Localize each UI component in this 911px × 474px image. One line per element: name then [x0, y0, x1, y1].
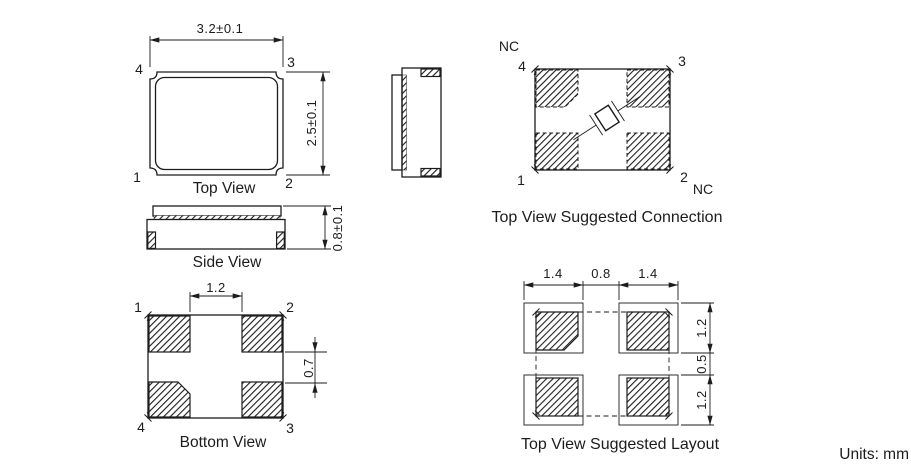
pad-gap-dimension-label: 1.2 [206, 280, 226, 295]
lid-outline [153, 206, 281, 216]
view-title: Top View Suggested Connection [492, 209, 723, 226]
view-title: Bottom View [180, 434, 268, 451]
package-drawing-canvas: 3.2±0.1 2.5±0.1 4 3 1 2 Top View 0.8±0.1… [0, 0, 911, 474]
layout-dim-label: 0.5 [694, 354, 709, 374]
pad-2 [242, 316, 282, 352]
pad-4-chamfered [536, 70, 578, 107]
pad-vgap-dimension-label: 0.7 [301, 358, 316, 378]
pad-2 [627, 133, 669, 169]
end-view [392, 68, 441, 177]
component-pad-4-chamfered [536, 312, 578, 350]
component-pad-1 [536, 378, 578, 416]
terminal-pad [277, 232, 285, 248]
package-outline [150, 72, 283, 175]
top-view: 3.2±0.1 2.5±0.1 4 3 1 2 Top View [133, 21, 330, 197]
layout-view: 1.4 0.8 1.4 1.2 0.5 1.2 Top View Suggest… [521, 266, 720, 453]
pin-label: 1 [133, 169, 141, 185]
bottom-view: 1.2 0.7 1 2 4 3 Bottom View [134, 280, 327, 451]
pin-label: 2 [286, 299, 294, 315]
connection-view: NC 4 3 1 2 NC Top View Suggested Connect… [492, 38, 723, 226]
layout-dim-label: 1.4 [543, 266, 563, 281]
lid-outline [156, 78, 278, 170]
package-drawing: 3.2±0.1 2.5±0.1 4 3 1 2 Top View 0.8±0.1… [0, 0, 911, 474]
layout-dim-label: 1.4 [638, 266, 658, 281]
pin-label: 4 [518, 58, 526, 74]
pin-label: 3 [287, 54, 295, 70]
layout-dim-label: 1.2 [694, 318, 709, 338]
seal-strip [403, 75, 407, 170]
layout-dim-label: 1.2 [694, 390, 709, 410]
terminal-pad [148, 232, 156, 248]
pin-label: 1 [517, 172, 525, 188]
pin-label: 3 [286, 420, 294, 436]
pad-4-chamfered [149, 382, 190, 417]
package-body [402, 68, 441, 177]
pin-label: 3 [678, 53, 686, 69]
nc-label: NC [499, 38, 519, 54]
component-pad-2 [627, 378, 669, 416]
package-body [147, 220, 285, 250]
side-view: 0.8±0.1 Side View [147, 205, 345, 271]
lid-outline [392, 75, 402, 170]
pin-label: 2 [285, 175, 293, 191]
pad-1 [536, 133, 578, 169]
terminal-pad [421, 69, 440, 77]
component-pad-3 [627, 312, 669, 350]
view-title: Top View [193, 180, 256, 197]
view-title: Top View Suggested Layout [521, 436, 720, 453]
layout-dim-label: 0.8 [591, 266, 611, 281]
terminal-pad [421, 169, 440, 177]
pin-label: 2 [680, 169, 688, 185]
pad-3 [242, 382, 282, 417]
view-title: Side View [193, 254, 262, 271]
pin-label: 4 [135, 61, 143, 77]
pad-1 [149, 316, 190, 352]
height-dimension-label: 2.5±0.1 [304, 100, 319, 147]
pin-label: 4 [137, 419, 145, 435]
nc-label: NC [693, 181, 713, 197]
width-dimension-label: 3.2±0.1 [197, 21, 244, 36]
units-note: Units: mm [839, 446, 909, 463]
pin-label: 1 [134, 299, 142, 315]
thickness-dimension-label: 0.8±0.1 [330, 205, 345, 252]
